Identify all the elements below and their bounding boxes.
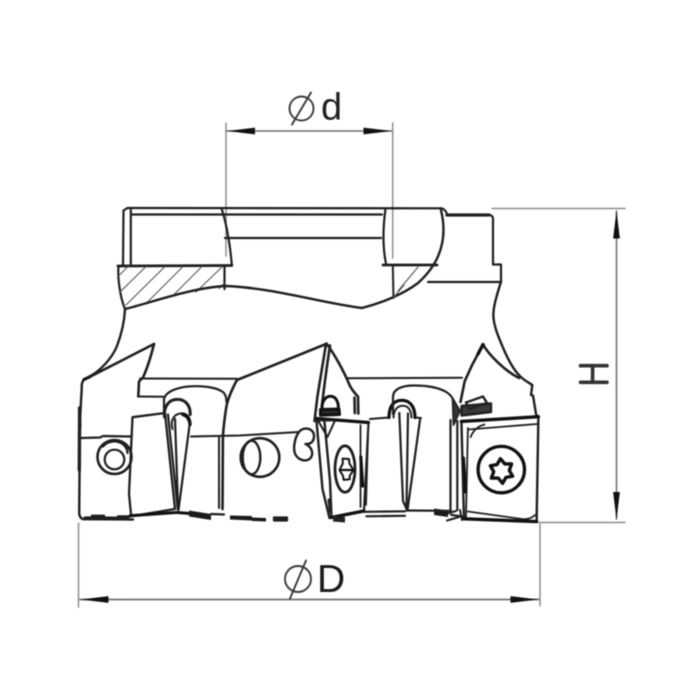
svg-text:d: d	[321, 87, 342, 129]
svg-text:D: D	[317, 558, 345, 601]
